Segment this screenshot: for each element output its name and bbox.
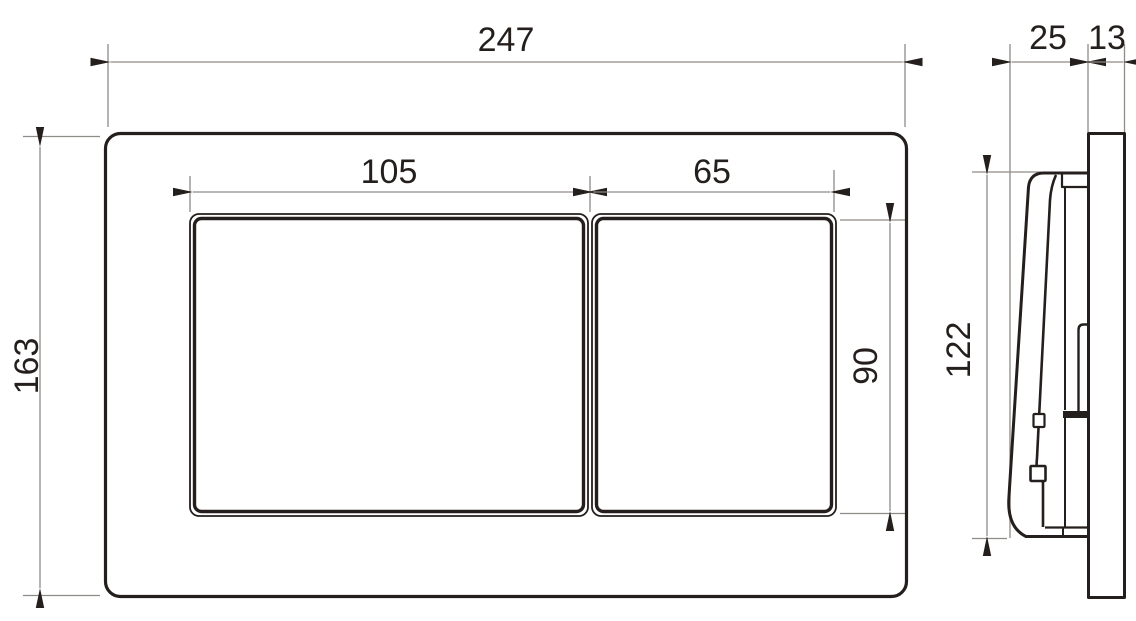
side-view (1009, 134, 1125, 598)
small-button-cutout (592, 214, 836, 516)
small-button (597, 219, 832, 512)
front-view (106, 134, 907, 597)
plate-top-clip (1062, 173, 1088, 187)
dim-label-button-height: 90 (849, 347, 883, 385)
clip-detail-upper (1034, 414, 1045, 427)
dimension-drawing: 247 163 105 65 90 25 13 122 (0, 0, 1136, 621)
dim-label-side-plate-height: 122 (942, 322, 976, 379)
large-button-cutout (190, 214, 588, 516)
dim-label-protrusion-depth: 25 (1029, 21, 1067, 55)
drawing-linework (0, 0, 1136, 621)
dim-label-overall-width: 247 (478, 23, 535, 57)
clip-detail-lower (1031, 466, 1046, 481)
plate-outline (106, 134, 907, 597)
button-profile (1079, 325, 1089, 412)
dim-label-overall-height: 163 (10, 338, 44, 395)
dim-label-small-button-width: 65 (693, 155, 731, 189)
mounting-frame-profile (1089, 134, 1125, 598)
dim-label-frame-depth: 13 (1088, 21, 1126, 55)
dim-label-large-button-width: 105 (361, 155, 418, 189)
large-button (195, 219, 584, 512)
